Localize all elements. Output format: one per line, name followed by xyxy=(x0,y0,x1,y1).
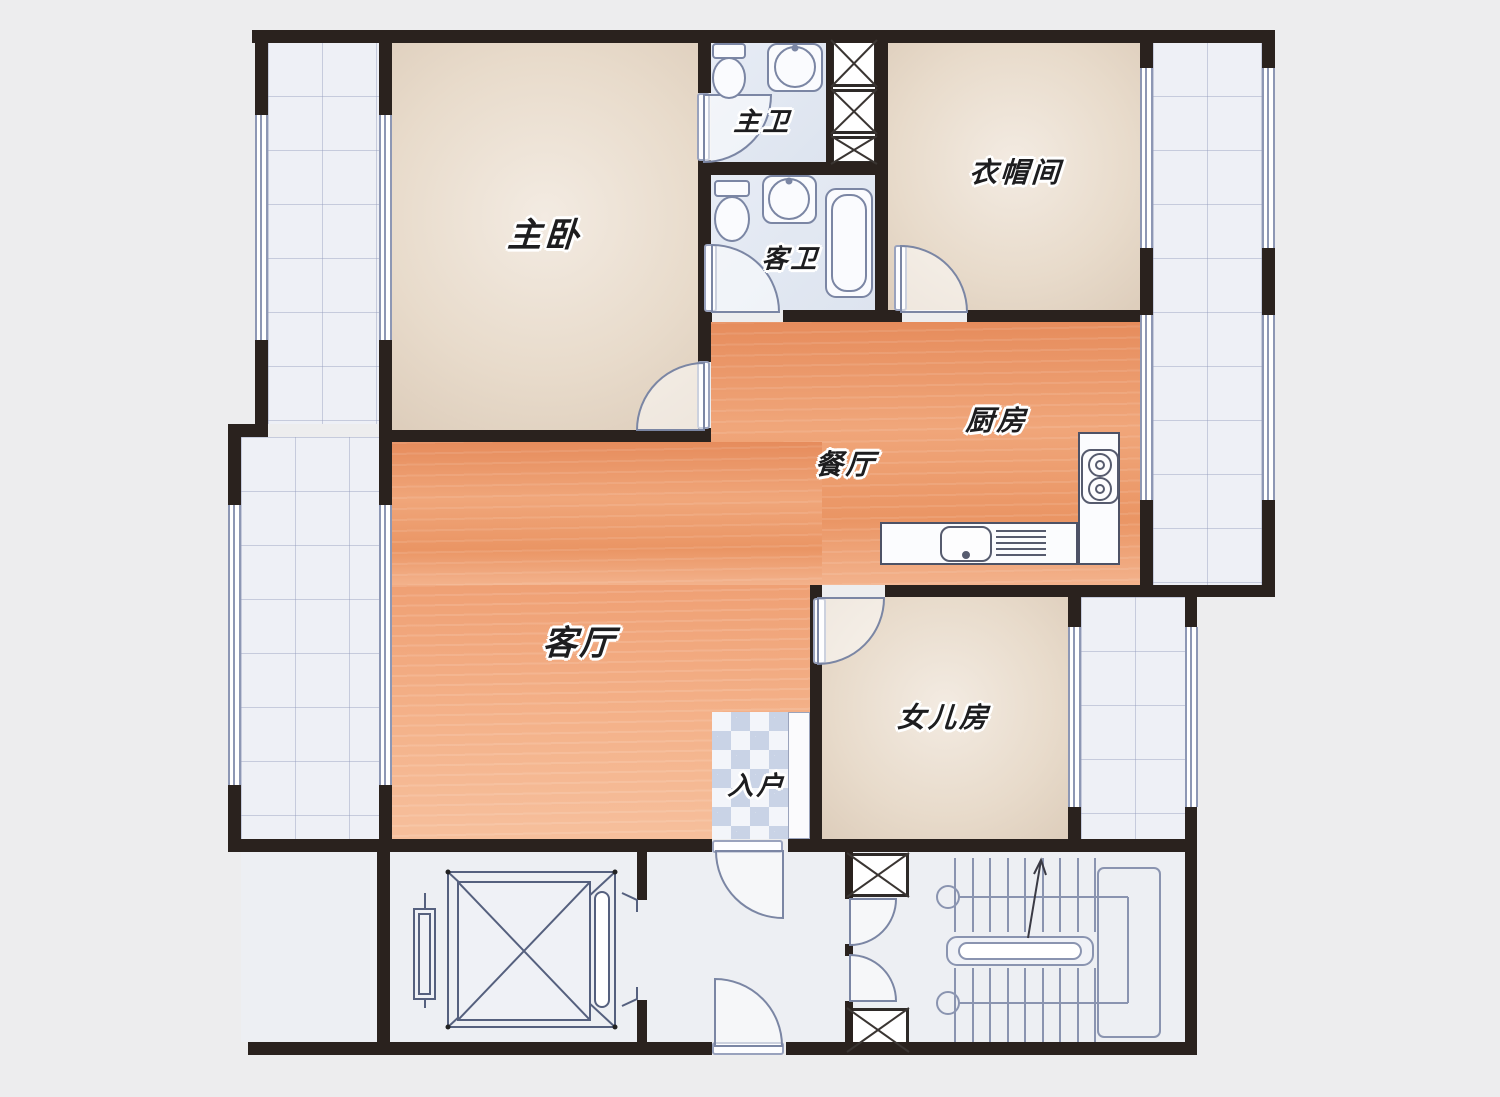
door-leaf-master-bath xyxy=(697,93,710,161)
wall-apartment-bottom-2 xyxy=(788,839,1197,852)
window-living-west xyxy=(379,505,392,785)
door-leaf-entry xyxy=(712,840,783,853)
balcony-left-upper-floor xyxy=(268,42,379,424)
shaft-box-1 xyxy=(831,40,877,87)
wall-cloakroom-west xyxy=(875,30,888,322)
floor-plan: 主卧 主卫 客卫 衣帽间 厨房 餐厅 客厅 女儿房 入户 xyxy=(0,0,1500,1097)
balcony-right-lower-floor xyxy=(1081,597,1185,839)
shaft-box-3 xyxy=(831,136,877,164)
window-balcony-rl-outer xyxy=(1185,627,1198,807)
kitchen-counter-horizontal xyxy=(880,522,1078,565)
wall-outer-bottom-2 xyxy=(786,1042,1185,1055)
wall-outer-bottom-1 xyxy=(248,1042,712,1055)
window-balcony-ru-outer-1 xyxy=(1262,68,1275,248)
label-dining-room: 餐厅 xyxy=(814,443,879,483)
label-cloakroom: 衣帽间 xyxy=(968,151,1064,191)
room-living-upper-floor xyxy=(392,442,822,585)
entry-shoe-cabinet xyxy=(788,712,810,839)
balcony-right-upper-floor xyxy=(1153,42,1262,585)
window-daughter-east xyxy=(1068,627,1081,807)
wall-stair-stub-top xyxy=(845,852,853,899)
window-balcony-ru-outer-2 xyxy=(1262,315,1275,500)
door-leaf-master-bedroom xyxy=(697,361,710,429)
wall-shaft-west xyxy=(826,30,833,164)
label-master-bedroom: 主卧 xyxy=(506,208,583,257)
window-cloakroom-east xyxy=(1140,68,1153,248)
wall-stair-stub-mid xyxy=(845,944,853,956)
kitchen-counter-vertical xyxy=(1078,432,1120,565)
label-master-bath: 主卫 xyxy=(733,102,794,139)
door-leaf-guest-bath xyxy=(704,244,717,312)
window-bedroom-west xyxy=(379,115,392,340)
wall-top xyxy=(252,30,1275,43)
wall-cloakroom-bottom xyxy=(967,310,1140,322)
door-leaf-daughter-room xyxy=(813,598,826,664)
wall-apartment-bottom-1 xyxy=(228,839,712,852)
wall-bath-divider xyxy=(698,162,875,175)
balcony-left-lower-floor xyxy=(241,437,379,839)
door-leaf-cloakroom xyxy=(894,245,907,311)
window-balcony-left-outer xyxy=(255,115,268,340)
wall-corridor-left xyxy=(377,839,390,1055)
wall-bedroom-east-3 xyxy=(698,428,711,442)
wall-lobby-stub-bottom xyxy=(637,1000,647,1042)
shaft-box-2 xyxy=(831,89,877,134)
shaft-box-corridor-top xyxy=(847,853,909,897)
label-living-room: 客厅 xyxy=(541,616,618,665)
window-kitchen-east xyxy=(1140,315,1153,500)
label-daughter-room: 女儿房 xyxy=(896,696,992,736)
label-entry: 入户 xyxy=(727,766,788,803)
label-guest-bath: 客卫 xyxy=(761,239,822,276)
door-leaf-corridor xyxy=(712,1042,784,1055)
wall-bedroom-east-1 xyxy=(698,30,711,93)
wall-bedroom-bottom xyxy=(380,430,711,442)
wall-lobby-stub-top xyxy=(637,852,647,900)
window-living-outer xyxy=(228,505,241,785)
wall-stair-stub-bottom xyxy=(845,1001,853,1042)
label-kitchen: 厨房 xyxy=(965,399,1030,439)
